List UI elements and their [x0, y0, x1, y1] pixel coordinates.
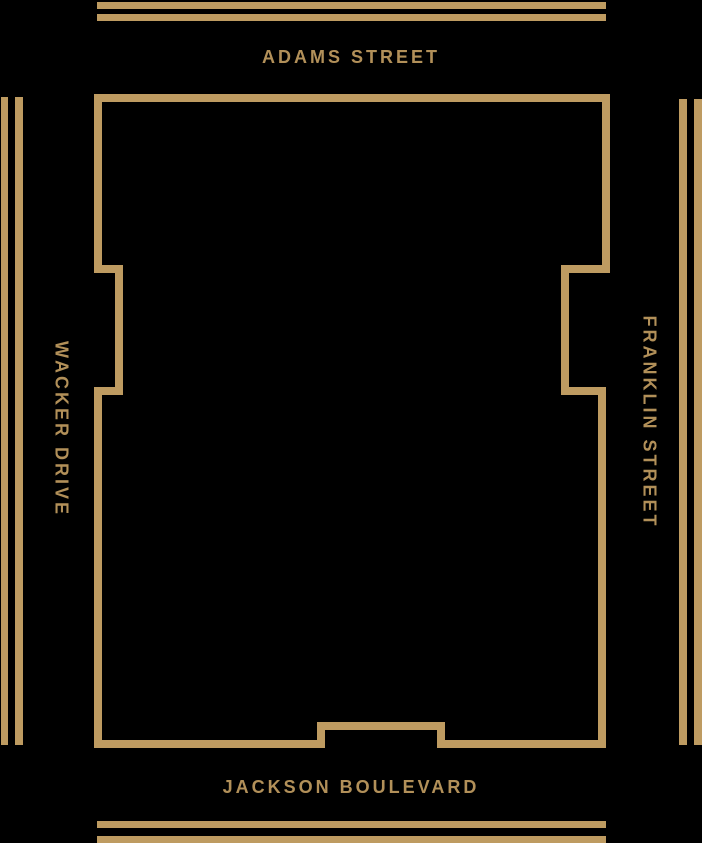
jackson-boulevard-curb-lines [97, 825, 606, 840]
street-label-adams: ADAMS STREET [0, 47, 702, 68]
street-label-wacker: WACKER DRIVE [51, 341, 72, 517]
street-label-jackson: JACKSON BOULEVARD [0, 777, 702, 798]
franklin-street-curb-lines [683, 99, 698, 745]
street-label-franklin: FRANKLIN STREET [639, 316, 660, 529]
adams-street-curb-lines [97, 6, 606, 18]
map-linework [0, 0, 702, 843]
building-outline [98, 98, 606, 744]
wacker-drive-curb-lines [5, 97, 20, 745]
site-map: ADAMS STREET JACKSON BOULEVARD WACKER DR… [0, 0, 702, 843]
